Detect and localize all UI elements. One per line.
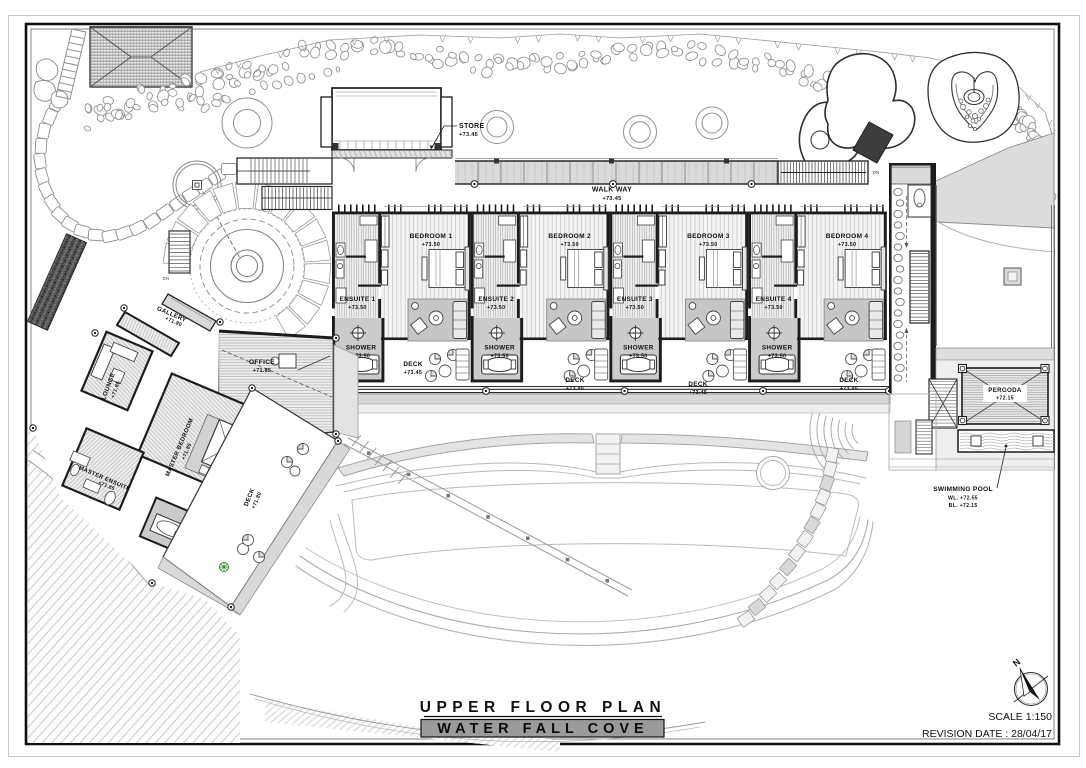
- svg-text:DECK: DECK: [565, 377, 584, 384]
- svg-text:BEDROOM 2: BEDROOM 2: [548, 233, 591, 240]
- svg-text:+73.50: +73.50: [487, 305, 505, 311]
- svg-text:+73.50: +73.50: [629, 354, 647, 360]
- svg-text:BEDROOM 3: BEDROOM 3: [687, 233, 730, 240]
- svg-text:+72.15: +72.15: [996, 396, 1014, 402]
- svg-text:SHOWER: SHOWER: [623, 345, 654, 352]
- svg-text:+73.50: +73.50: [490, 354, 508, 360]
- svg-text:BEDROOM 4: BEDROOM 4: [826, 233, 869, 240]
- svg-text:+73.50: +73.50: [768, 354, 786, 360]
- svg-text:SHOWER: SHOWER: [346, 345, 377, 352]
- svg-text:SHOWER: SHOWER: [762, 345, 793, 352]
- svg-text:BL. +72.15: BL. +72.15: [949, 503, 978, 509]
- svg-text:STORE: STORE: [459, 123, 485, 130]
- svg-text:+73.50: +73.50: [699, 242, 717, 248]
- svg-text:DN: DN: [163, 276, 170, 281]
- svg-text:OFFICE: OFFICE: [249, 359, 275, 366]
- svg-text:+71.85: +71.85: [253, 368, 271, 374]
- svg-text:+73.50: +73.50: [838, 242, 856, 248]
- svg-text:WATER FALL COVE: WATER FALL COVE: [437, 721, 648, 737]
- svg-text:ENSUITE 3: ENSUITE 3: [617, 296, 653, 303]
- svg-text:DECK: DECK: [403, 361, 422, 368]
- svg-text:+73.50: +73.50: [348, 305, 366, 311]
- svg-text:+73.50: +73.50: [764, 305, 782, 311]
- svg-text:+73.50: +73.50: [560, 242, 578, 248]
- svg-text:BEDROOM 1: BEDROOM 1: [410, 233, 453, 240]
- svg-text:+73.45: +73.45: [404, 370, 422, 376]
- svg-text:UPPER FLOOR PLAN: UPPER FLOOR PLAN: [420, 699, 666, 716]
- svg-text:PERGODA: PERGODA: [988, 387, 1022, 394]
- svg-text:REVISION DATE : 28/04/17: REVISION DATE : 28/04/17: [922, 728, 1052, 740]
- svg-text:ENSUITE 2: ENSUITE 2: [478, 296, 514, 303]
- svg-text:SHOWER: SHOWER: [484, 345, 515, 352]
- svg-text:+73.45: +73.45: [602, 196, 621, 202]
- svg-text:+73.50: +73.50: [626, 305, 644, 311]
- svg-text:DN: DN: [872, 170, 879, 175]
- svg-text:+73.50: +73.50: [422, 242, 440, 248]
- svg-text:ENSUITE 4: ENSUITE 4: [756, 296, 792, 303]
- svg-text:DECK: DECK: [839, 377, 858, 384]
- svg-text:WL. +72.55: WL. +72.55: [948, 496, 978, 502]
- svg-text:SWIMMING POOL: SWIMMING POOL: [933, 486, 993, 493]
- svg-text:+73.45: +73.45: [459, 132, 478, 138]
- svg-text:ENSUITE 1: ENSUITE 1: [340, 296, 376, 303]
- svg-text:SCALE 1:150: SCALE 1:150: [988, 711, 1052, 723]
